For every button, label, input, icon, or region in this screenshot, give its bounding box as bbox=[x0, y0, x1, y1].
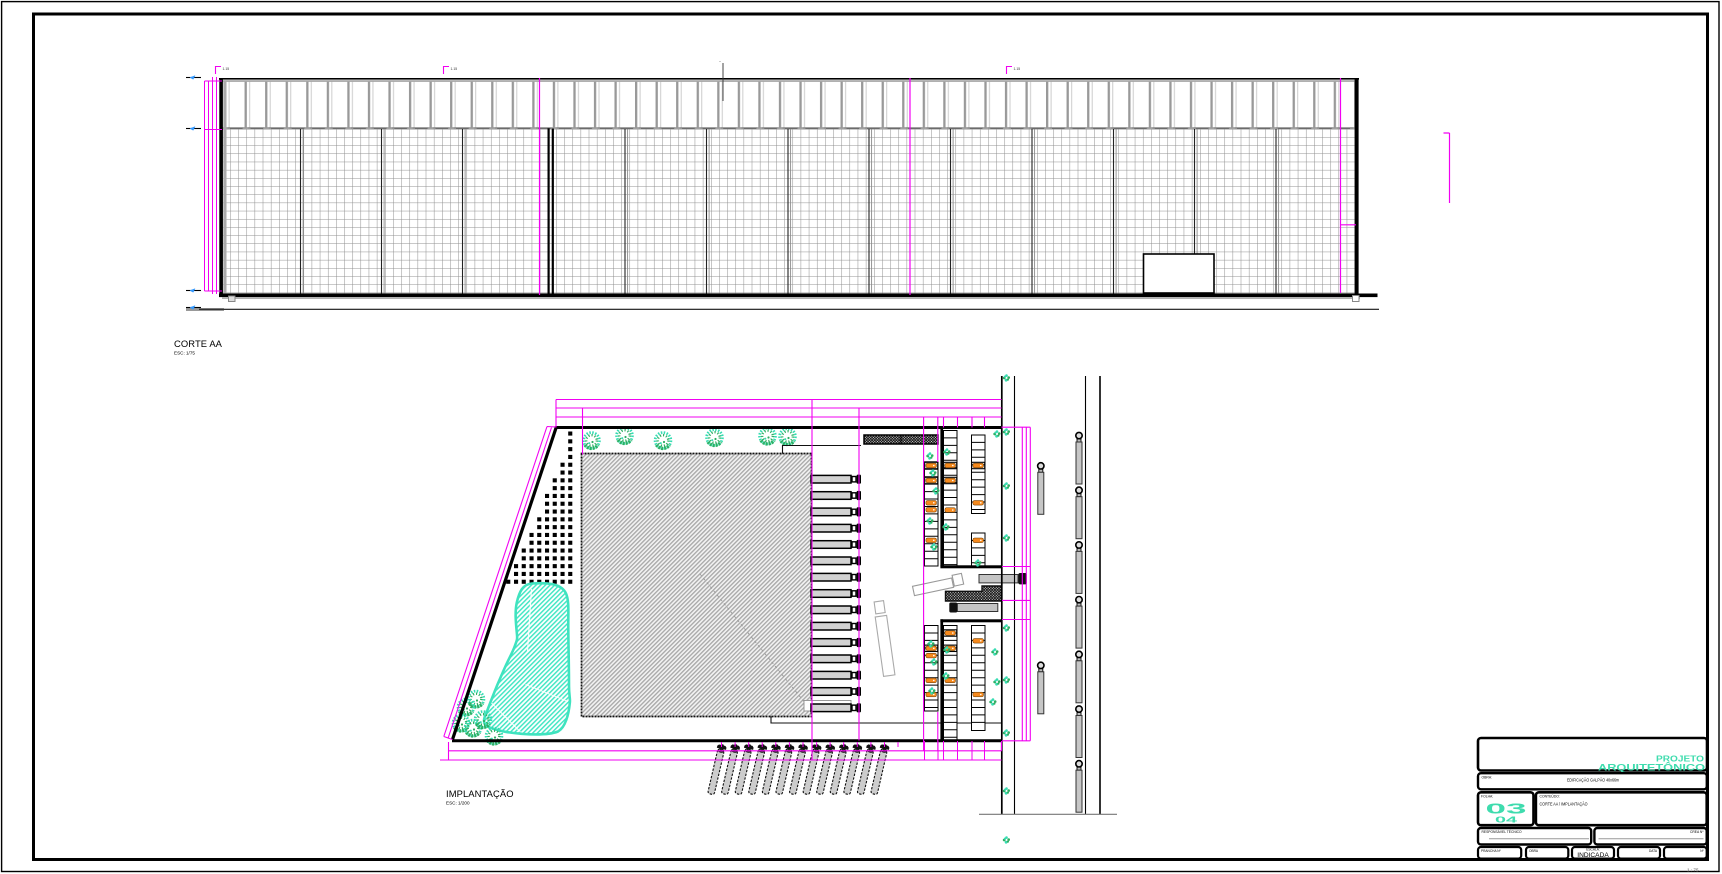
svg-text:04: 04 bbox=[1495, 816, 1518, 825]
svg-text:IMPLANTAÇÃO: IMPLANTAÇÃO bbox=[446, 788, 514, 799]
svg-text:CORTE AA: CORTE AA bbox=[174, 338, 223, 349]
svg-text:..: .. bbox=[719, 58, 721, 63]
svg-text:ESC: 1/75: ESC: 1/75 bbox=[174, 351, 195, 356]
svg-text:FOLHA:: FOLHA: bbox=[1481, 795, 1493, 799]
svg-text:1.15: 1.15 bbox=[223, 67, 230, 71]
svg-text:RESPONSÁVEL TÉCNICO: RESPONSÁVEL TÉCNICO bbox=[1482, 829, 1523, 834]
svg-text:CONTEÚDO:: CONTEÚDO: bbox=[1540, 794, 1560, 799]
svg-text:DATA: DATA bbox=[1649, 849, 1658, 853]
svg-text:EDIFICAÇÃO GALPÃO 40x66m: EDIFICAÇÃO GALPÃO 40x66m bbox=[1567, 776, 1619, 783]
svg-text:OBRA:: OBRA: bbox=[1482, 775, 1493, 779]
svg-text:PRANCHA Nº: PRANCHA Nº bbox=[1481, 849, 1502, 853]
svg-text:1.15: 1.15 bbox=[1014, 67, 1021, 71]
svg-text:CREA Nº: CREA Nº bbox=[1690, 830, 1704, 834]
svg-text:OBRA: OBRA bbox=[1529, 849, 1539, 853]
svg-text:ESCALA:: ESCALA: bbox=[1586, 848, 1600, 852]
svg-text:ARQUITETÔNICO: ARQUITETÔNICO bbox=[1598, 762, 1706, 774]
svg-text:1 : 75: 1 : 75 bbox=[1687, 868, 1699, 873]
svg-text:INDICADA: INDICADA bbox=[1577, 852, 1609, 859]
svg-text:CORTE AA / IMPLANTAÇÃO: CORTE AA / IMPLANTAÇÃO bbox=[1540, 801, 1588, 808]
svg-text:ESC: 1/200: ESC: 1/200 bbox=[446, 801, 470, 806]
svg-text:1.15: 1.15 bbox=[451, 67, 458, 71]
